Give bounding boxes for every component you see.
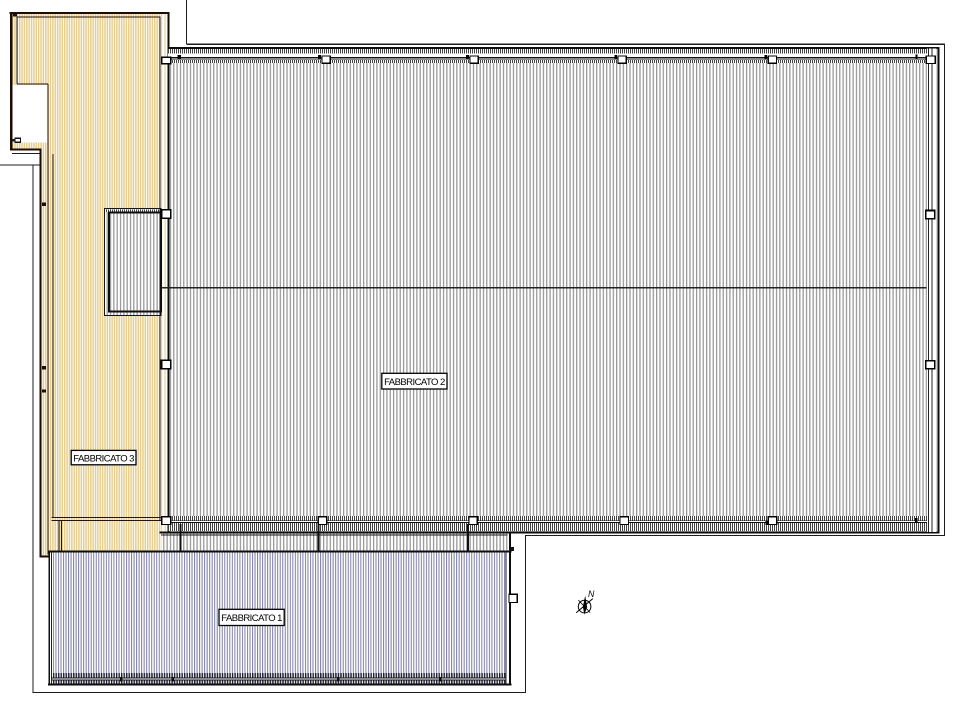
svg-text:N: N: [588, 589, 595, 599]
svg-text:FABBRICATO 3: FABBRICATO 3: [73, 453, 134, 464]
svg-text:FABBRICATO 1: FABBRICATO 1: [221, 613, 282, 624]
svg-text:FABBRICATO 2: FABBRICATO 2: [384, 377, 445, 388]
